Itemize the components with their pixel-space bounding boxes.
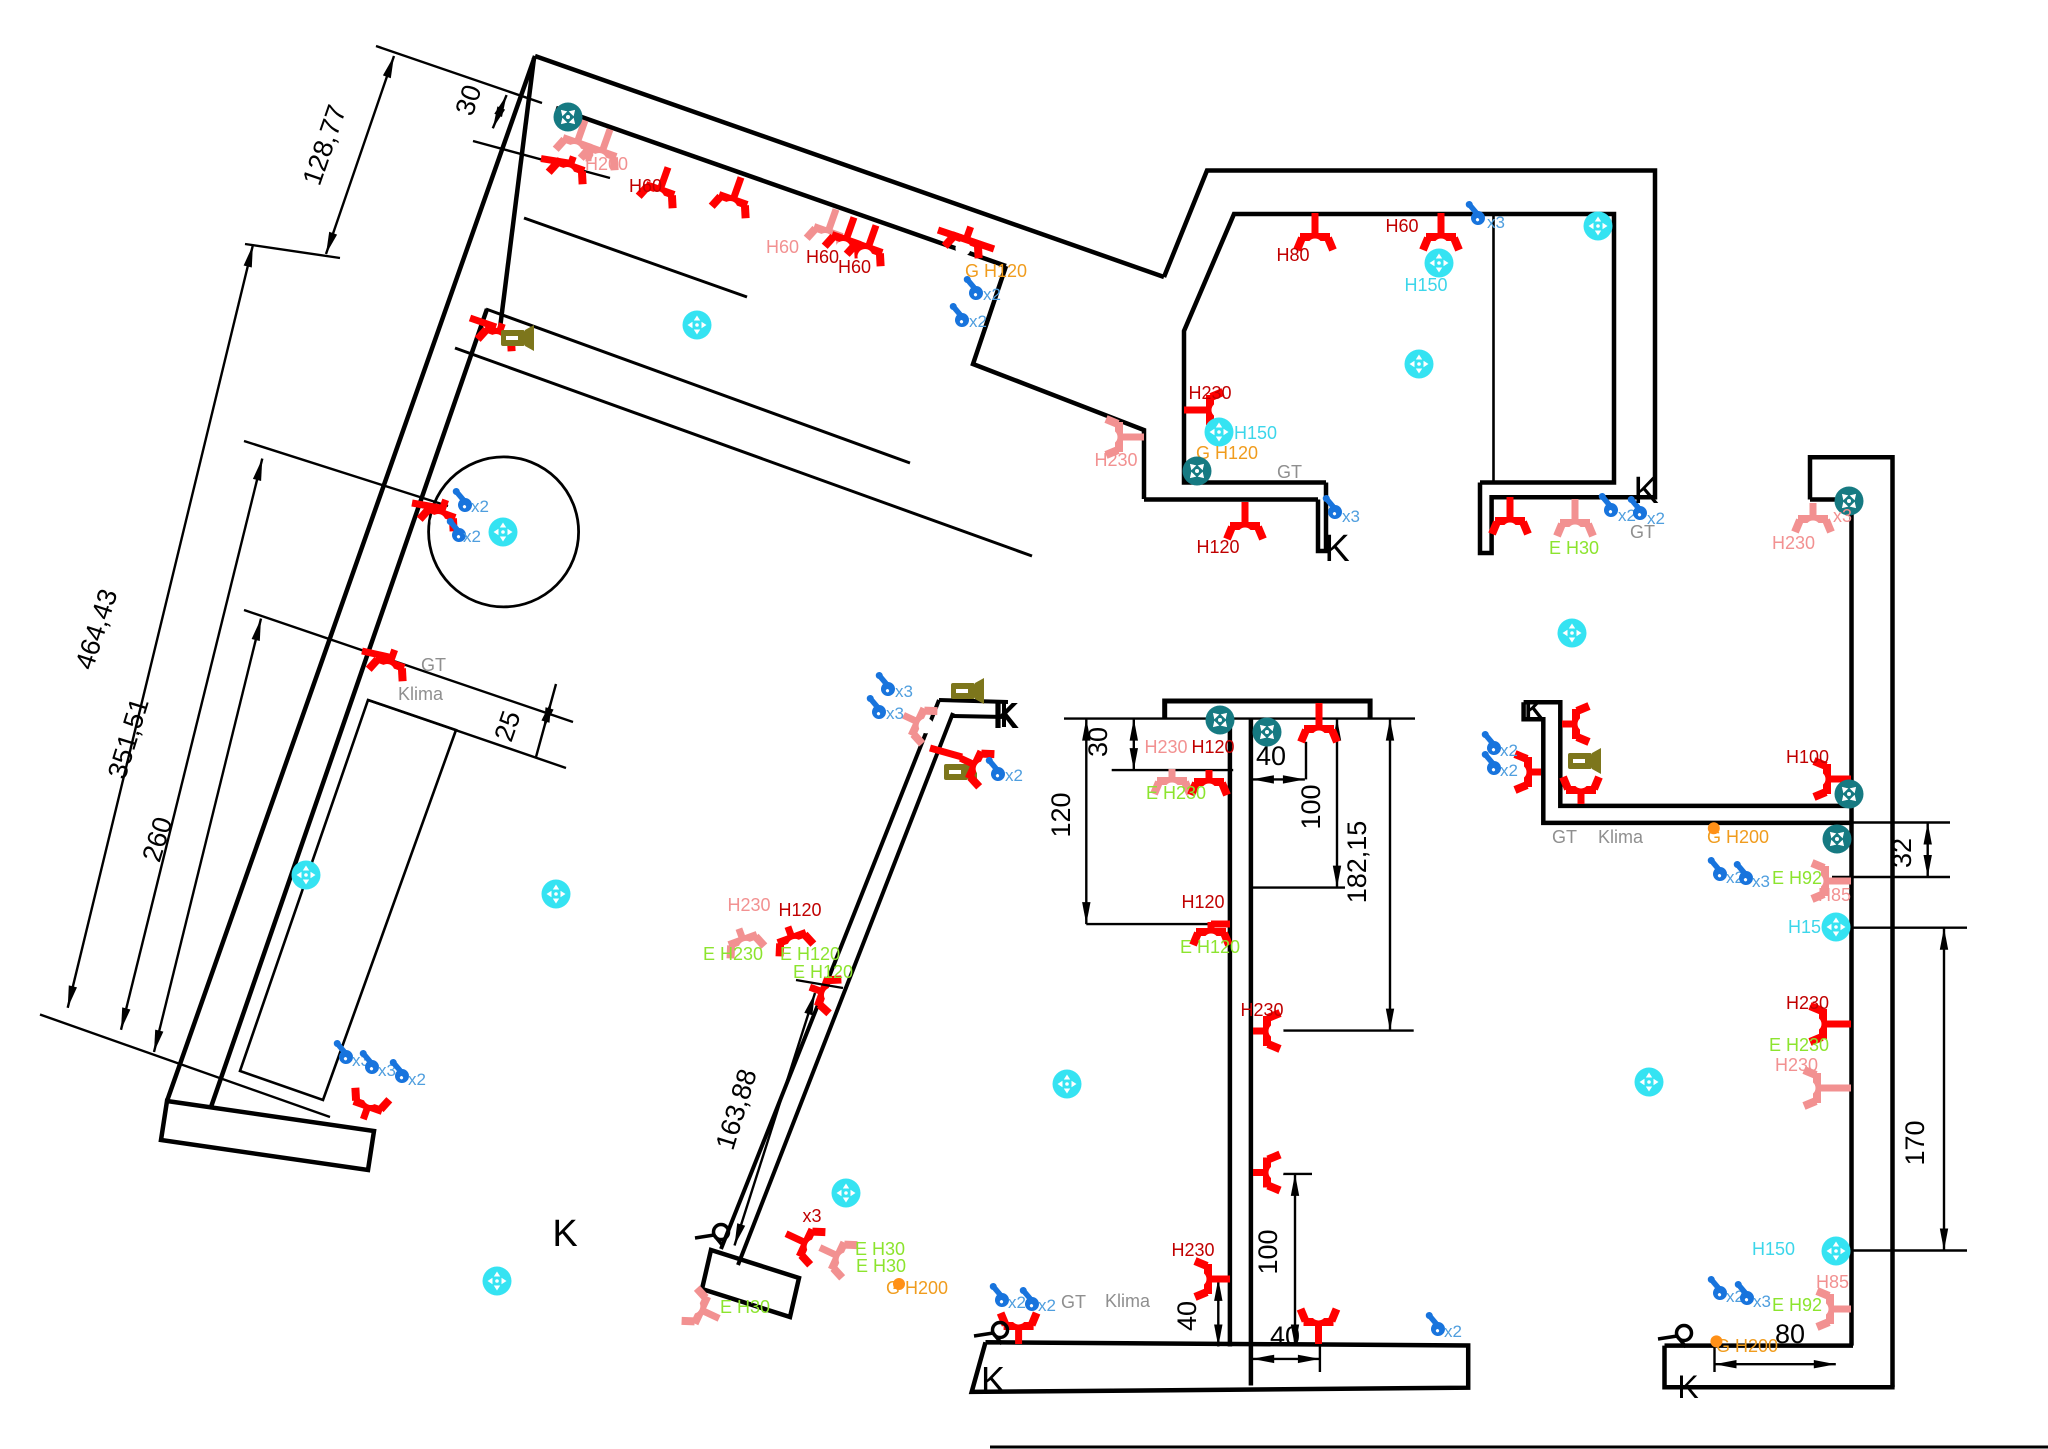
svg-text:H100: H100 — [1786, 747, 1829, 767]
svg-text:182,15: 182,15 — [1342, 821, 1372, 904]
svg-text:H230: H230 — [727, 895, 770, 915]
svg-text:K: K — [981, 1359, 1005, 1400]
svg-text:Klima: Klima — [1105, 1291, 1151, 1311]
svg-text:H200: H200 — [585, 154, 628, 174]
svg-text:K: K — [552, 1213, 577, 1255]
svg-text:x3: x3 — [1752, 872, 1770, 891]
svg-text:H120: H120 — [778, 900, 821, 920]
svg-text:GT: GT — [1277, 462, 1302, 482]
svg-text:K: K — [1525, 694, 1544, 724]
svg-text:80: 80 — [1775, 1319, 1805, 1349]
svg-text:E H92: E H92 — [1772, 868, 1822, 888]
svg-text:x3: x3 — [1833, 506, 1852, 526]
svg-text:H120: H120 — [1196, 537, 1239, 557]
svg-text:H80: H80 — [1276, 245, 1309, 265]
svg-text:K: K — [1324, 528, 1349, 570]
svg-text:x2: x2 — [1005, 766, 1023, 785]
svg-text:H230: H230 — [1786, 993, 1829, 1013]
svg-text:H60: H60 — [838, 257, 871, 277]
svg-text:E H30: E H30 — [856, 1256, 906, 1276]
svg-text:GT: GT — [1552, 827, 1577, 847]
svg-text:H230: H230 — [1171, 1240, 1214, 1260]
svg-text:40: 40 — [1172, 1301, 1202, 1331]
svg-text:E H230: E H230 — [1769, 1035, 1829, 1055]
svg-text:x2: x2 — [1500, 761, 1518, 780]
svg-text:K: K — [993, 695, 1019, 736]
svg-text:E H30: E H30 — [1549, 538, 1599, 558]
svg-text:H15: H15 — [1788, 917, 1821, 937]
svg-text:x2: x2 — [969, 312, 987, 331]
svg-text:x2: x2 — [1008, 1293, 1026, 1312]
svg-text:H230: H230 — [1772, 533, 1815, 553]
svg-text:x3: x3 — [1753, 1292, 1771, 1311]
svg-text:H230: H230 — [1188, 383, 1231, 403]
svg-text:H150: H150 — [1234, 423, 1277, 443]
svg-text:G H200: G H200 — [1716, 1336, 1778, 1356]
svg-text:H60: H60 — [1385, 216, 1418, 236]
svg-text:E H120: E H120 — [1180, 937, 1240, 957]
svg-text:x3: x3 — [1342, 507, 1360, 526]
svg-text:Klima: Klima — [398, 684, 444, 704]
svg-text:120: 120 — [1046, 792, 1076, 837]
svg-text:E H230: E H230 — [1146, 783, 1206, 803]
svg-text:x2: x2 — [463, 527, 481, 546]
svg-text:E H230: E H230 — [703, 944, 763, 964]
svg-text:x3: x3 — [1487, 213, 1505, 232]
svg-text:x3: x3 — [802, 1206, 821, 1226]
svg-text:H150: H150 — [1404, 275, 1447, 295]
svg-text:x2: x2 — [1444, 1322, 1462, 1341]
svg-text:H85: H85 — [1818, 885, 1851, 905]
svg-text:GT: GT — [1630, 522, 1655, 542]
svg-text:H150: H150 — [1752, 1239, 1795, 1259]
svg-text:GT: GT — [1061, 1292, 1086, 1312]
svg-text:170: 170 — [1900, 1120, 1930, 1165]
svg-text:x2: x2 — [1500, 741, 1518, 760]
svg-text:GT: GT — [421, 655, 446, 675]
svg-text:E H92: E H92 — [1772, 1295, 1822, 1315]
svg-text:K: K — [1677, 1369, 1698, 1405]
svg-text:x3: x3 — [895, 682, 913, 701]
svg-text:Klima: Klima — [1598, 827, 1644, 847]
svg-text:E H120: E H120 — [780, 944, 840, 964]
svg-text:30: 30 — [1083, 727, 1113, 757]
svg-text:H60: H60 — [806, 247, 839, 267]
svg-text:x2: x2 — [1038, 1296, 1056, 1315]
svg-text:E H120: E H120 — [793, 962, 853, 982]
svg-text:G H120: G H120 — [965, 261, 1027, 281]
svg-text:H120: H120 — [1191, 737, 1234, 757]
svg-text:H230: H230 — [1240, 1000, 1283, 1020]
svg-text:E H30: E H30 — [720, 1297, 770, 1317]
svg-text:32: 32 — [1887, 838, 1917, 868]
svg-text:x2: x2 — [471, 497, 489, 516]
svg-text:100: 100 — [1296, 784, 1326, 829]
svg-text:K: K — [1633, 470, 1658, 512]
svg-text:H120: H120 — [1181, 892, 1224, 912]
svg-text:x2: x2 — [408, 1070, 426, 1089]
svg-text:100: 100 — [1253, 1229, 1283, 1274]
svg-text:x3: x3 — [886, 704, 904, 723]
svg-text:H230: H230 — [1094, 450, 1137, 470]
svg-text:x2: x2 — [983, 285, 1001, 304]
svg-text:H60: H60 — [629, 176, 662, 196]
svg-text:H230: H230 — [1144, 737, 1187, 757]
svg-text:40: 40 — [1270, 1321, 1300, 1351]
svg-text:H60: H60 — [766, 237, 799, 257]
